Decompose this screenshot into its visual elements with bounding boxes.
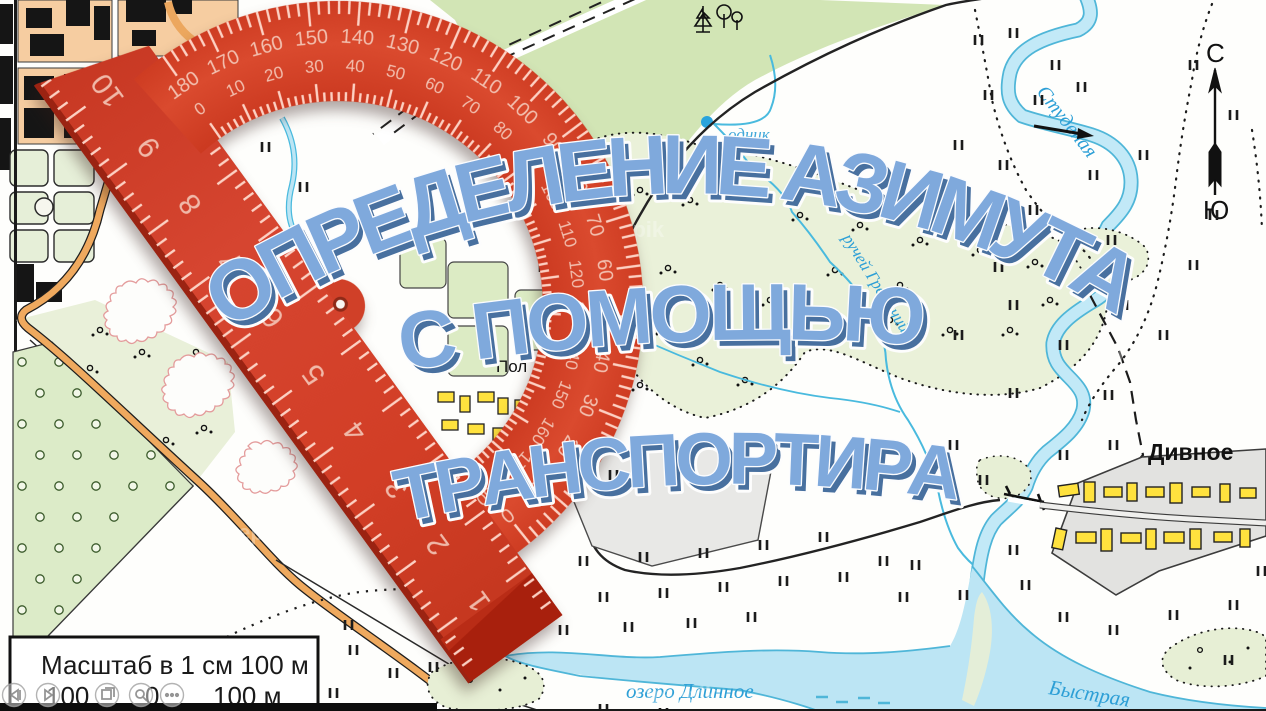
svg-text:О: О	[674, 417, 733, 501]
svg-text:150: 150	[294, 26, 329, 51]
svg-text:freepik: freepik	[210, 520, 283, 545]
svg-text:О: О	[522, 275, 593, 370]
svg-text:freepik: freepik	[1110, 342, 1183, 367]
svg-text:Р: Р	[728, 417, 778, 501]
svg-text:Щ: Щ	[709, 267, 791, 357]
svg-text:Дивное: Дивное	[1148, 439, 1233, 465]
svg-text:О: О	[648, 268, 714, 359]
svg-text:Масштаб в 1 см 100 м: Масштаб в 1 см 100 м	[41, 650, 309, 680]
svg-text:140: 140	[340, 26, 375, 50]
svg-text:30: 30	[304, 56, 325, 77]
svg-text:Ь: Ь	[787, 267, 847, 357]
svg-text:А: А	[903, 426, 967, 515]
svg-text:М: М	[583, 270, 656, 363]
svg-text:freepik: freepik	[855, 70, 928, 95]
svg-text:Ю: Ю	[841, 268, 928, 361]
svg-text:40: 40	[345, 56, 365, 76]
svg-text:Н: Н	[604, 117, 670, 214]
svg-text:С: С	[1206, 38, 1225, 68]
svg-text:freepik: freepik	[645, 682, 718, 707]
svg-text:Е: Е	[713, 118, 775, 216]
svg-text:П: П	[624, 418, 682, 504]
